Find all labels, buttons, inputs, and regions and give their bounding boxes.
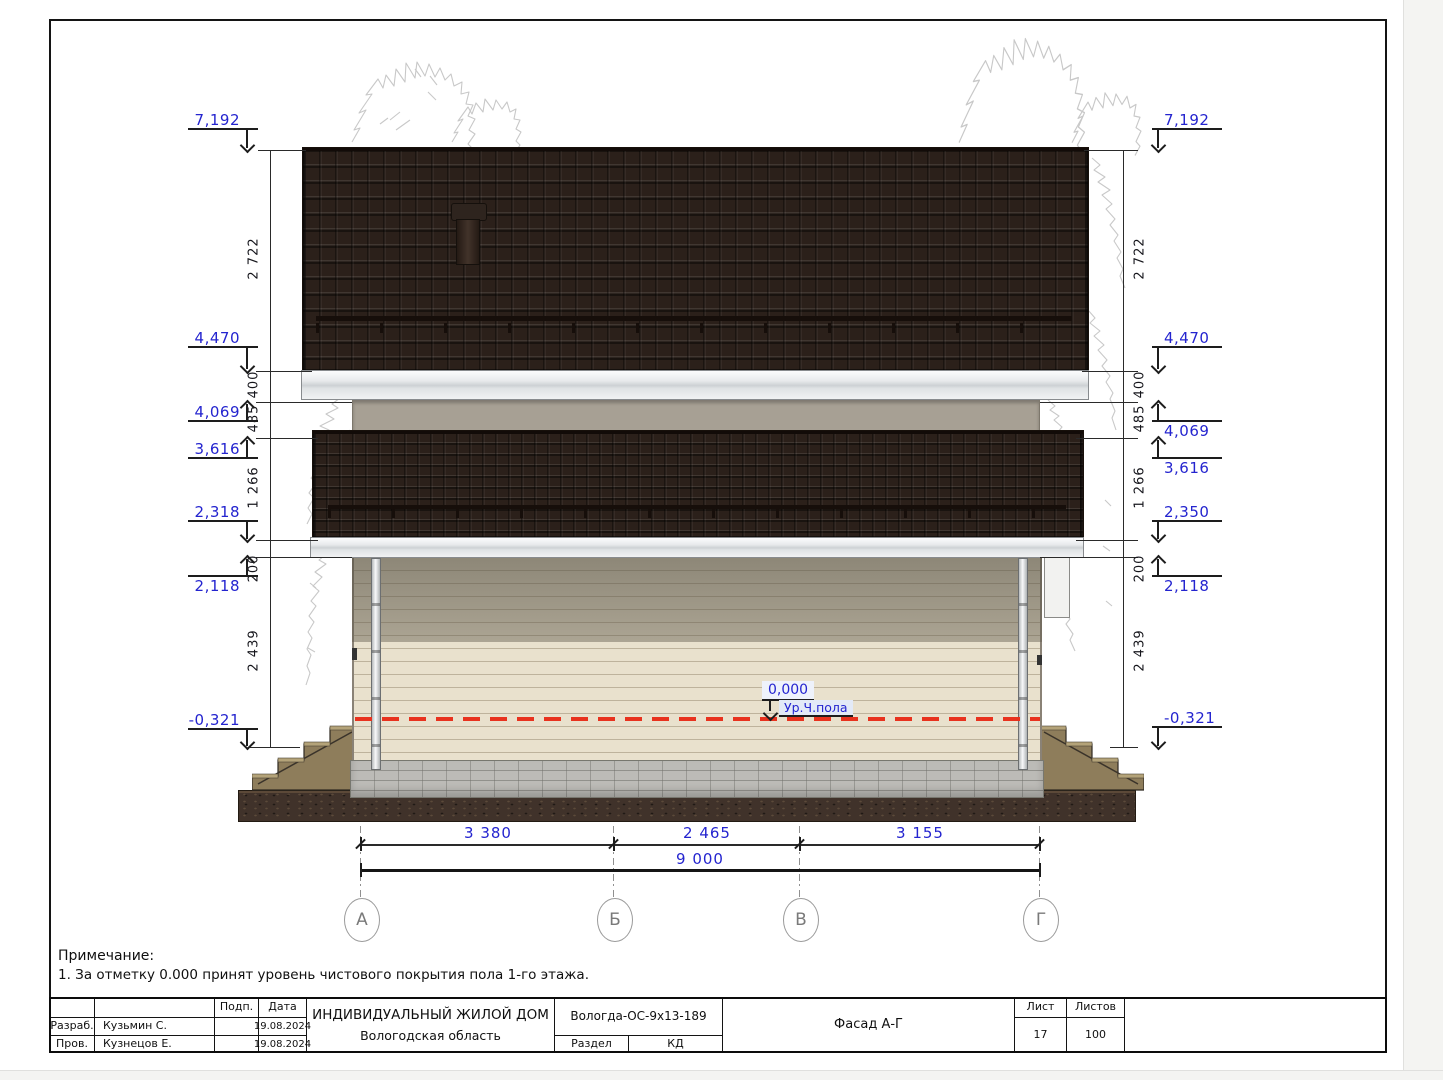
dim-tick [360,863,362,877]
tb-sign-header: Подп. [214,997,259,1018]
bottom-dim-line [361,844,1040,846]
ext-line [1082,371,1138,372]
tb-date-2: 19.08.2024 [258,1035,307,1053]
tb-date-header: Дата [258,997,307,1018]
axis-label: А [356,910,368,930]
dim-label: 2 722 [247,224,262,294]
tb-date-1: 19.08.2024 [258,1017,307,1036]
dim-label: 2 465 [683,824,731,842]
dim-label: 200 [1133,534,1148,604]
second-floor-band [352,400,1040,431]
dim-tick [1039,863,1041,877]
ext-line [256,371,312,372]
ext-line [1110,747,1138,748]
axis-circle-g: Г [1023,898,1059,942]
lower-eaves-fascia [310,537,1084,558]
tb-cell-empty [94,997,215,1018]
axis-circle-a: А [344,898,380,942]
tb-role-1: Разраб. [49,1017,95,1036]
corner-panel-right [1044,556,1070,618]
wall-vent-left [352,648,357,660]
sheet-label: Лист [1027,1001,1055,1013]
tb-drawing-title: Фасад А-Г [722,997,1015,1053]
drawing-title: Фасад А-Г [834,1018,903,1032]
tb-role-label: Разраб. [50,1020,93,1032]
ext-line [256,402,352,403]
tb-name-label: Кузьмин С. [103,1020,167,1032]
elevation-mark: 3,616 [176,440,240,458]
sheets-total: 100 [1085,1029,1106,1041]
axis-circle-v: В [783,898,819,942]
tb-name-1: Кузьмин С. [94,1017,215,1036]
dim-label: 3 380 [464,824,512,842]
snow-guard-main-legs [316,323,1072,333]
foundation [350,760,1044,798]
tb-role-label: Пров. [56,1038,88,1050]
wall-vent-right [1037,655,1042,665]
tb-date-label: Дата [268,1001,296,1013]
sheets-label: Листов [1075,1001,1116,1013]
elevation-leader [1152,520,1222,522]
tb-section-value: КД [628,1035,723,1053]
ext-line [1076,438,1138,439]
elevation-mark: 3,616 [1164,459,1228,477]
tb-sheet-number: 17 [1014,1017,1067,1053]
elevation-leader [1152,346,1222,348]
section-value: КД [667,1038,683,1050]
elevation-mark: 2,350 [1164,503,1228,521]
downspout-left [371,558,381,770]
dim-label: 1 266 [247,453,262,523]
tb-sheets-total: 100 [1066,1017,1125,1053]
elevation-mark: -0,321 [176,711,240,729]
elevation-mark: 4,069 [1164,422,1228,440]
dim-line-right [1123,150,1124,747]
elevation-mark: -0,321 [1164,709,1228,727]
elevation-mark: 4,470 [1164,329,1228,347]
ext-line [256,557,352,558]
elevation-mark: 7,192 [1164,111,1228,129]
roof-vent-pipe [456,219,480,265]
floor-level-mark: 0,000 [762,681,814,701]
tb-date-value: 19.08.2024 [254,1039,311,1050]
elevation-mark: 4,470 [176,329,240,347]
elevation-mark: 2,318 [176,503,240,521]
elevation-leader [188,420,258,422]
tb-date-value: 19.08.2024 [254,1021,311,1032]
dim-label: 1 266 [1133,453,1148,523]
dim-label: 485 [1133,384,1148,454]
ext-line [1040,402,1138,403]
dim-label: 3 155 [896,824,944,842]
tb-project-cell: ИНДИВИДУАЛЬНЫЙ ЖИЛОЙ ДОМ Вологодская обл… [306,997,555,1053]
tb-sheets-header: Листов [1066,997,1125,1018]
snow-guard-lower-legs [328,509,1066,518]
sheet-number: 17 [1034,1029,1048,1041]
project-title: ИНДИВИДУАЛЬНЫЙ ЖИЛОЙ ДОМ [312,1008,549,1023]
dim-label-total: 9 000 [676,850,724,868]
axis-label: Г [1036,910,1046,930]
snow-guard-main [316,316,1072,321]
project-subtitle: Вологодская область [360,1029,501,1043]
main-roof [302,147,1089,372]
elevation-mark: 4,069 [176,403,240,421]
floor-level-label: Ур.Ч.пола [779,700,853,717]
main-eaves-fascia [301,370,1089,400]
stairs-left [252,722,356,792]
elevation-mark: 7,192 [176,111,240,129]
ext-line [258,150,306,151]
stairs-right [1040,722,1144,792]
axis-circle-b: Б [597,898,633,942]
ext-line [250,747,300,748]
ext-line [1084,150,1138,151]
note-title: Примечание: [58,948,154,964]
tb-sign-1 [214,1017,259,1036]
tb-sign-2 [214,1035,259,1053]
tb-code-cell: Вологда-ОС-9х13-189 [554,997,723,1036]
ext-line [256,438,318,439]
floor-level-line [355,717,1040,721]
tb-sheet-header: Лист [1014,997,1067,1018]
axis-label: В [795,910,807,930]
axis-label: Б [609,910,621,930]
tb-role-2: Пров. [49,1035,95,1053]
tb-name-label: Кузнецов Е. [103,1038,172,1050]
bottom-total-line [361,869,1040,872]
tb-sign-label: Подп. [220,1001,253,1013]
lower-roof [312,430,1084,539]
elevation-leader [1152,726,1222,728]
project-code: Вологда-ОС-9х13-189 [570,1010,706,1023]
tb-cell-empty [1124,997,1387,1053]
ext-line [256,540,318,541]
elevation-mark: 2,118 [176,577,240,595]
ext-line [1040,557,1138,558]
elevation-mark: 2,118 [1164,577,1228,595]
dim-label: 2 439 [1133,616,1148,686]
elevation-leader [1152,128,1222,130]
dim-label: 2 722 [1133,224,1148,294]
drawing-sheet: 2 722 400 485 1 266 200 2 439 7,192 4,47… [0,0,1443,1080]
dim-line-left [270,150,271,747]
eave-shadow [352,558,1042,642]
tb-name-2: Кузнецов Е. [94,1035,215,1053]
section-label: Раздел [571,1038,612,1050]
downspout-right [1018,558,1028,770]
tb-cell-empty [49,997,95,1018]
elevation-leader [188,457,258,459]
ext-line [1076,540,1138,541]
tb-section-label: Раздел [554,1035,629,1053]
note-line: 1. За отметку 0.000 принят уровень чисто… [58,967,589,983]
dim-label: 2 439 [247,616,262,686]
